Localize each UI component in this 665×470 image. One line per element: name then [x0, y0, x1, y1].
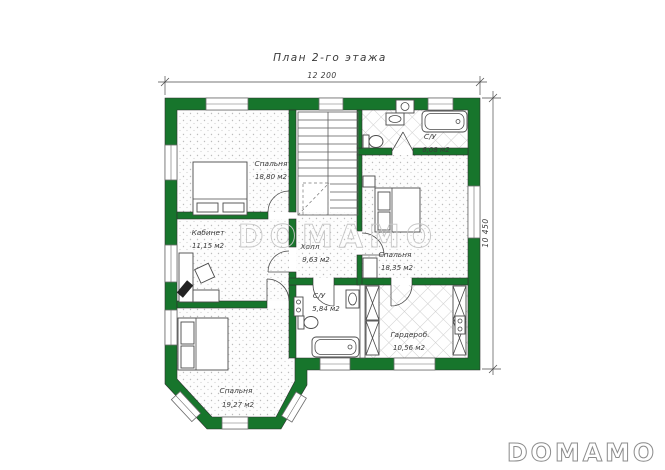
- room-area-hall: 9,63 м2: [302, 256, 330, 264]
- bed-icon: [178, 318, 228, 370]
- sink-icon: [346, 290, 359, 308]
- room-label-bathroom-mid: С/У: [313, 291, 326, 300]
- wall-bath-top-a: [357, 148, 392, 155]
- room-area-wardrobe: 10,56 м2: [393, 344, 426, 352]
- window: [165, 245, 177, 282]
- wall-bedroom1-stairs: [289, 110, 296, 212]
- washing-machine-icon: [396, 100, 414, 113]
- page-title: План 2-го этажа: [273, 52, 387, 64]
- room-label-bedroom-1: Спальня: [255, 159, 288, 168]
- window: [165, 310, 177, 345]
- radiator-icon: [455, 316, 465, 334]
- window: [468, 186, 480, 238]
- room-area-bedroom-3: 19,27 м2: [222, 401, 255, 409]
- dimension-top-label: 12 200: [307, 71, 336, 80]
- window: [319, 98, 343, 110]
- room-area-bedroom-1: 18,80 м2: [255, 173, 288, 181]
- dimension-right-label: 10 450: [481, 218, 490, 247]
- dimension-right: 10 450: [481, 91, 501, 375]
- staircase: [298, 112, 358, 215]
- watermark-corner: DOMAMO: [507, 438, 657, 467]
- bathtub-icon: [422, 111, 467, 132]
- room-label-office: Кабинет: [192, 228, 226, 237]
- room-label-wardrobe: Гардероб.: [390, 330, 429, 339]
- sink-icon: [386, 113, 404, 125]
- window: [394, 358, 435, 370]
- room-label-bedroom-3: Спальня: [220, 386, 253, 395]
- window: [320, 358, 350, 370]
- dresser-icon: [363, 258, 377, 278]
- stair-dashed-line: [298, 183, 329, 215]
- toilet-icon: [298, 316, 318, 329]
- watermark-center: DOMAMO: [238, 219, 438, 255]
- wall-hall-south-b: [334, 278, 391, 285]
- room-area-bedroom-2: 18,35 м2: [381, 264, 414, 272]
- window: [428, 98, 453, 110]
- bathtub-icon: [312, 337, 359, 357]
- toilet-icon: [363, 135, 383, 148]
- floor-plan-page: Спальня 18,80 м2 Кабинет 11,15 м2 Холл 9…: [0, 0, 665, 470]
- wall-hall-south-c: [412, 278, 468, 285]
- room-label-bathroom-top: С/У: [424, 132, 437, 141]
- wall-stairs-east-c: [357, 255, 362, 285]
- window: [165, 145, 177, 180]
- wall-bath-wardrobe: [360, 285, 365, 358]
- dimension-top: 12 200: [158, 71, 487, 95]
- room-area-office: 11,15 м2: [192, 242, 225, 250]
- window: [206, 98, 248, 110]
- wall-bedroom3-bath: [289, 285, 296, 358]
- stair-dashed-box: [303, 183, 328, 215]
- wall-hall-south-a: [289, 278, 313, 285]
- room-area-bathroom-top: 6,08 м2: [422, 146, 450, 154]
- window: [222, 417, 248, 429]
- room-area-bathroom-mid: 5,84 м2: [312, 305, 340, 313]
- floor-plan-drawing: Спальня 18,80 м2 Кабинет 11,15 м2 Холл 9…: [0, 0, 665, 470]
- bed-icon: [193, 162, 247, 215]
- towel-rail-icon: [294, 297, 303, 316]
